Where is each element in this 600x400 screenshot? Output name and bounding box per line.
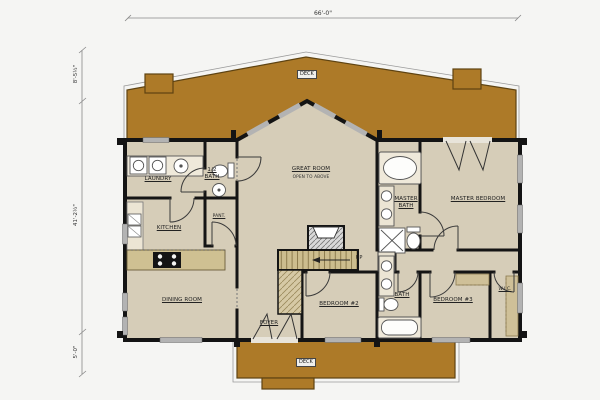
- room-label-pantry: PANT.: [207, 214, 231, 219]
- room-label-kitchen: KITCHEN: [149, 225, 189, 232]
- dimension-left-3: 5'-0": [73, 332, 79, 372]
- room-label-half-bath: 1/2 BATH: [201, 167, 223, 180]
- laundry-appliances-icon: [127, 156, 203, 176]
- fireplace-icon: [308, 226, 344, 250]
- dimension-left-2: 41'-2½": [73, 195, 79, 235]
- room-label-bath: BATH: [387, 292, 417, 299]
- room-label-master-bath: MASTER BATH: [391, 196, 421, 209]
- room-label-wic: W.I.C.: [493, 287, 517, 292]
- dimension-left-1: 8'-5½": [73, 54, 79, 94]
- deck-front-label: DECK: [296, 358, 316, 367]
- room-label-great-room: GREAT ROOM: [281, 166, 341, 173]
- stairs-up-label: UP: [352, 255, 366, 261]
- dimension-top: 66'-0": [128, 10, 518, 17]
- room-label-bedroom2: BEDROOM #2: [314, 301, 364, 308]
- room-label-laundry: LAUNDRY: [136, 176, 180, 183]
- room-label-master-bedroom: MASTER BEDROOM: [438, 196, 518, 203]
- toilet-icon: [379, 298, 384, 311]
- room-label-great-room-sub: OPEN TO ABOVE: [281, 175, 341, 180]
- floor-plan-canvas: 66'-0" 8'-5½" 41'-2½" 5'-0" LAUNDRY 1/2 …: [0, 0, 600, 400]
- toilet-icon: [407, 227, 420, 232]
- room-label-bedroom3: BEDROOM #3: [428, 297, 478, 304]
- deck-rear-label: DECK: [297, 70, 317, 79]
- room-label-foyer: FOYER: [252, 320, 286, 327]
- room-label-dining: DINING ROOM: [157, 297, 207, 304]
- range-icon: [153, 252, 181, 268]
- dimension-top-value: 66'-0": [311, 10, 335, 17]
